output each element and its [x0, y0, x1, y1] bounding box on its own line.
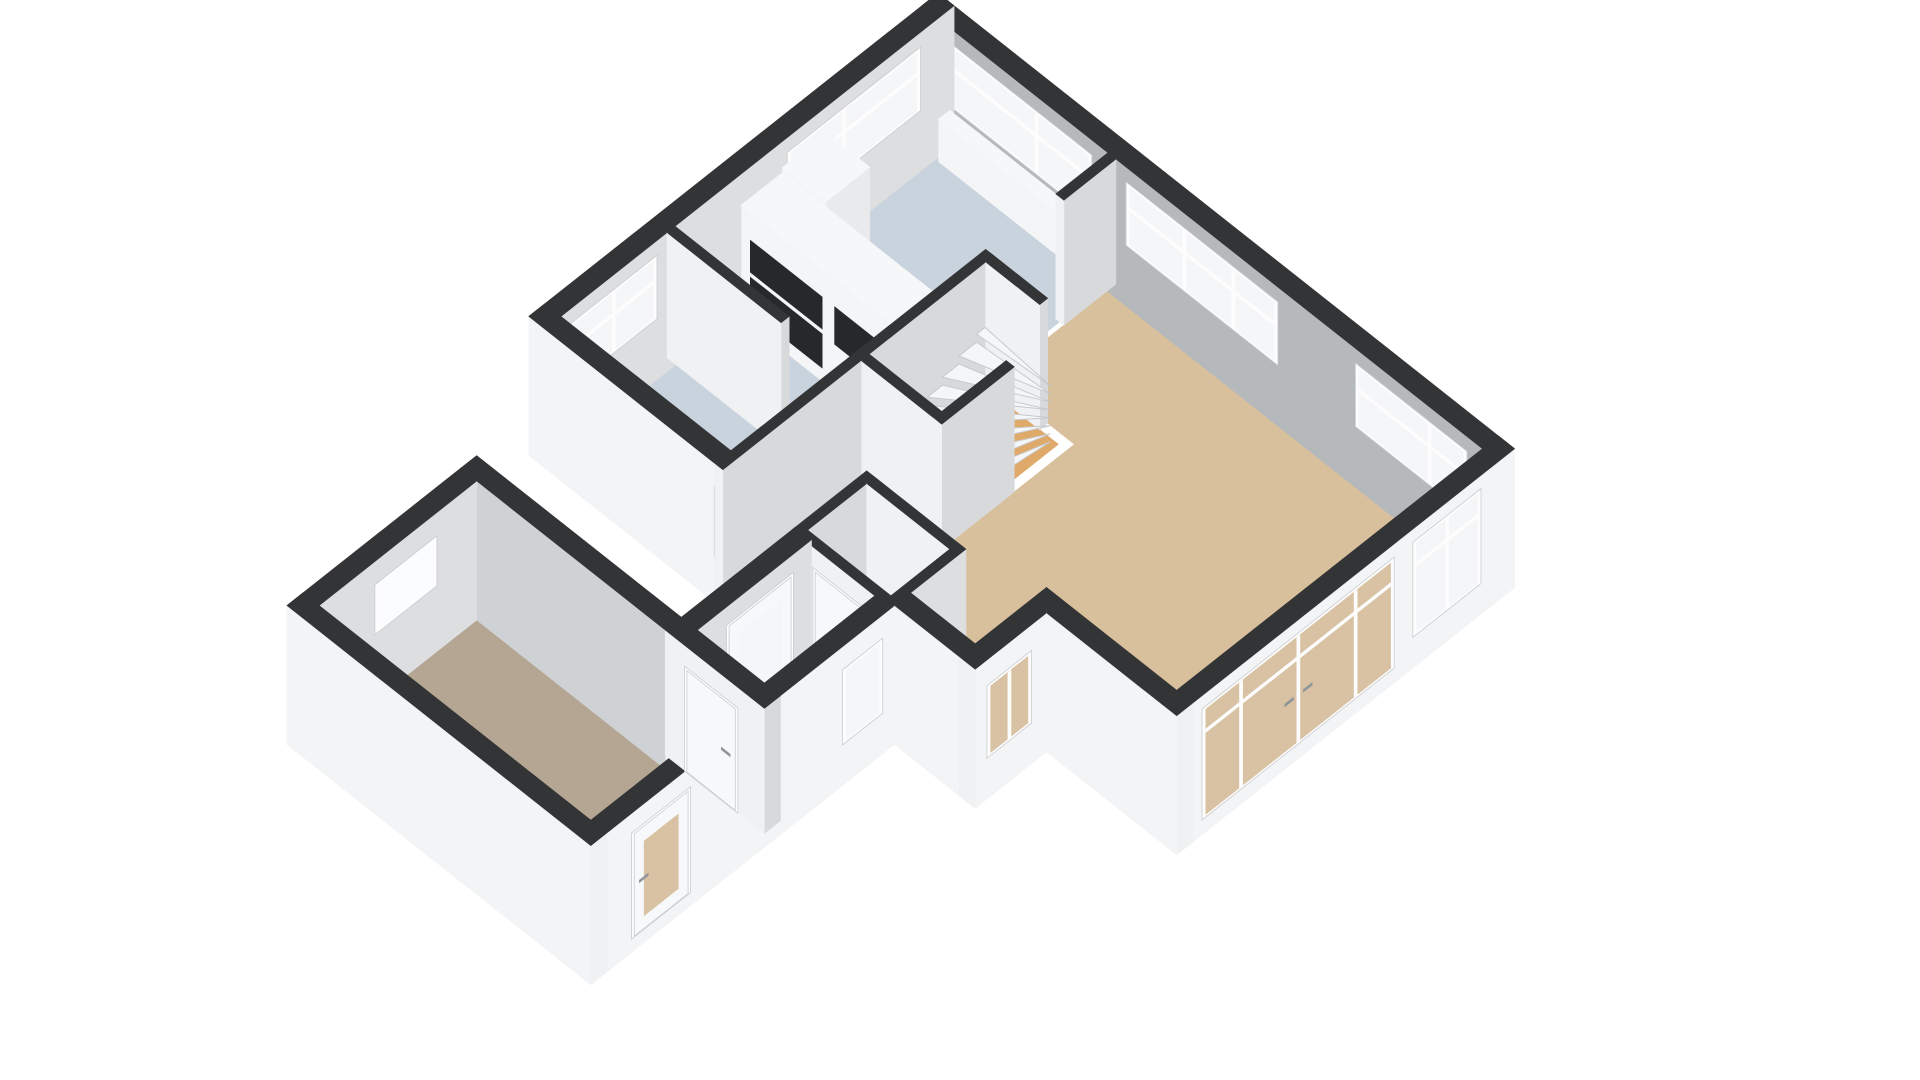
wall-kitchen-stub-face-sw [1056, 194, 1064, 325]
wall-garage-door-face-se [764, 696, 780, 834]
window-ne-2-mullion-0 [1183, 230, 1186, 290]
wall-kitchen-east-face-sw [715, 463, 723, 594]
wall-bay-se-face-sw [959, 657, 975, 809]
floorplan-stage [0, 0, 1920, 1080]
wall-living-sw-face-se [1177, 703, 1193, 855]
window-pantry-mullion-0 [612, 292, 615, 352]
french-doors-mullion-0 [1354, 590, 1357, 697]
window-ne-3-mullion-0 [1428, 424, 1431, 484]
floorplan-3d-render [0, 0, 1920, 1080]
window-ne-1-mullion-0 [1035, 113, 1038, 173]
french-doors-mullion-2 [1240, 680, 1243, 788]
french-doors-mullion-1 [1297, 635, 1300, 742]
window-bay-mullion-0 [1008, 670, 1011, 739]
window-ne-2-mullion-1 [1232, 269, 1235, 329]
window-se-tall-mullion-0 [1446, 518, 1449, 609]
wall-garage-sw-face-se [591, 833, 607, 985]
